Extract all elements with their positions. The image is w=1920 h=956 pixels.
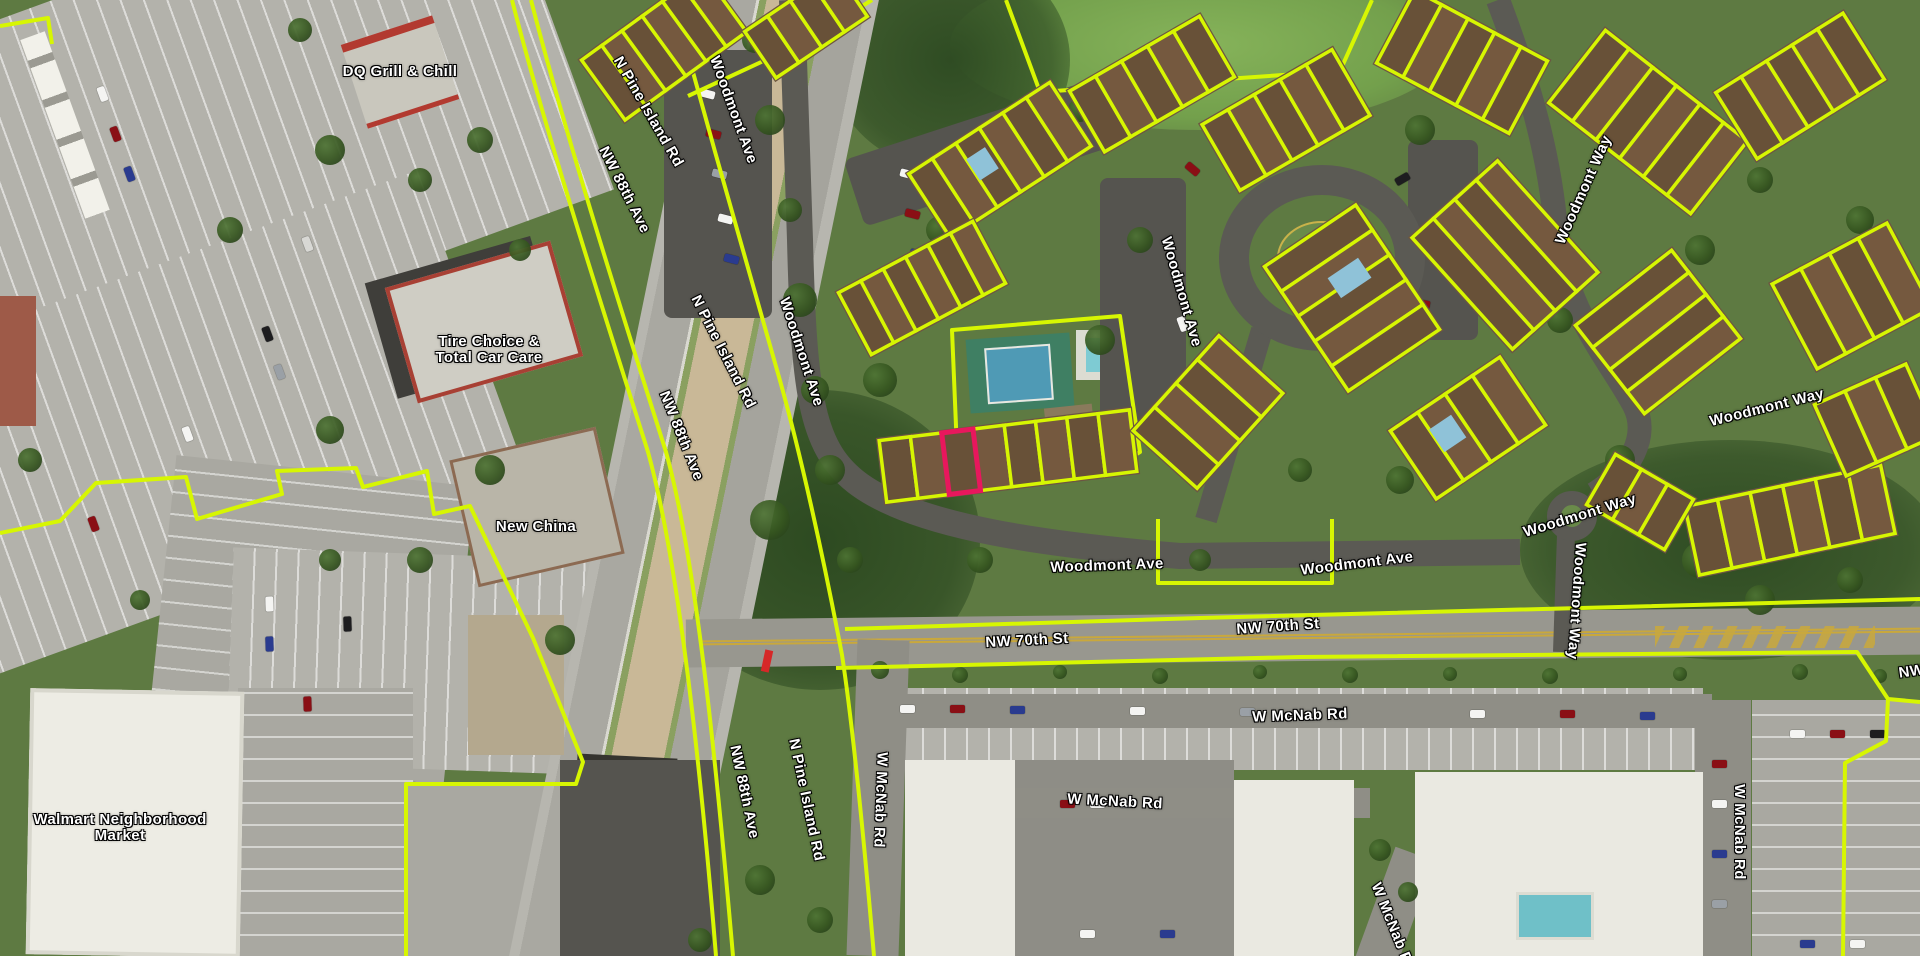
parcel-cluster — [1129, 331, 1287, 492]
parcel-cluster — [1810, 360, 1920, 480]
road-label-w-mcnab-rd-3: W McNab Rd — [870, 752, 889, 848]
place-label-new-china: New China — [496, 519, 576, 535]
parcel-cluster — [876, 407, 1140, 506]
label-text: W McNab Rd — [1252, 706, 1348, 725]
label-text: Total Car Care — [435, 350, 542, 366]
label-text: Market — [33, 828, 206, 844]
label-text: W McNab Rd — [870, 752, 889, 848]
parcel-boundary[interactable] — [512, 0, 716, 956]
parcel-boundary[interactable] — [0, 468, 583, 956]
parcel-overlay — [0, 0, 1920, 956]
parcel-cluster — [1681, 461, 1898, 578]
map-canvas[interactable]: DQ Grill & ChillTire Choice &Total Car C… — [0, 0, 1920, 956]
place-label-tire-choice: Tire Choice &Total Car Care — [435, 334, 542, 366]
label-text: W McNab Rd — [1731, 784, 1747, 880]
road-label-w-mcnab-rd-4: W McNab Rd — [1731, 784, 1747, 880]
parcel-cluster — [741, 0, 872, 82]
road-label-w-mcnab-rd-1: W McNab Rd — [1252, 706, 1348, 725]
label-text: New China — [496, 519, 576, 535]
parcel-cluster — [834, 217, 1009, 358]
parcel-cluster — [905, 78, 1096, 242]
place-label-walmart: Walmart NeighborhoodMarket — [33, 812, 206, 844]
label-text: DQ Grill & Chill — [343, 64, 458, 80]
place-label-dq-grill: DQ Grill & Chill — [343, 64, 458, 80]
parcel-cluster — [1768, 219, 1920, 373]
parcel-outline[interactable] — [1098, 410, 1137, 475]
parcel-boundary[interactable] — [0, 18, 52, 44]
parcel-cluster — [1386, 353, 1550, 503]
road-marker — [761, 649, 773, 672]
parcel-boundary[interactable] — [1843, 699, 1888, 956]
parcel-boundary[interactable] — [845, 599, 1920, 629]
parcel-boundary[interactable] — [836, 652, 1920, 702]
parcel-cluster — [1372, 0, 1551, 137]
label-text: Tire Choice & — [435, 334, 542, 350]
label-text: Walmart Neighborhood — [33, 812, 206, 828]
